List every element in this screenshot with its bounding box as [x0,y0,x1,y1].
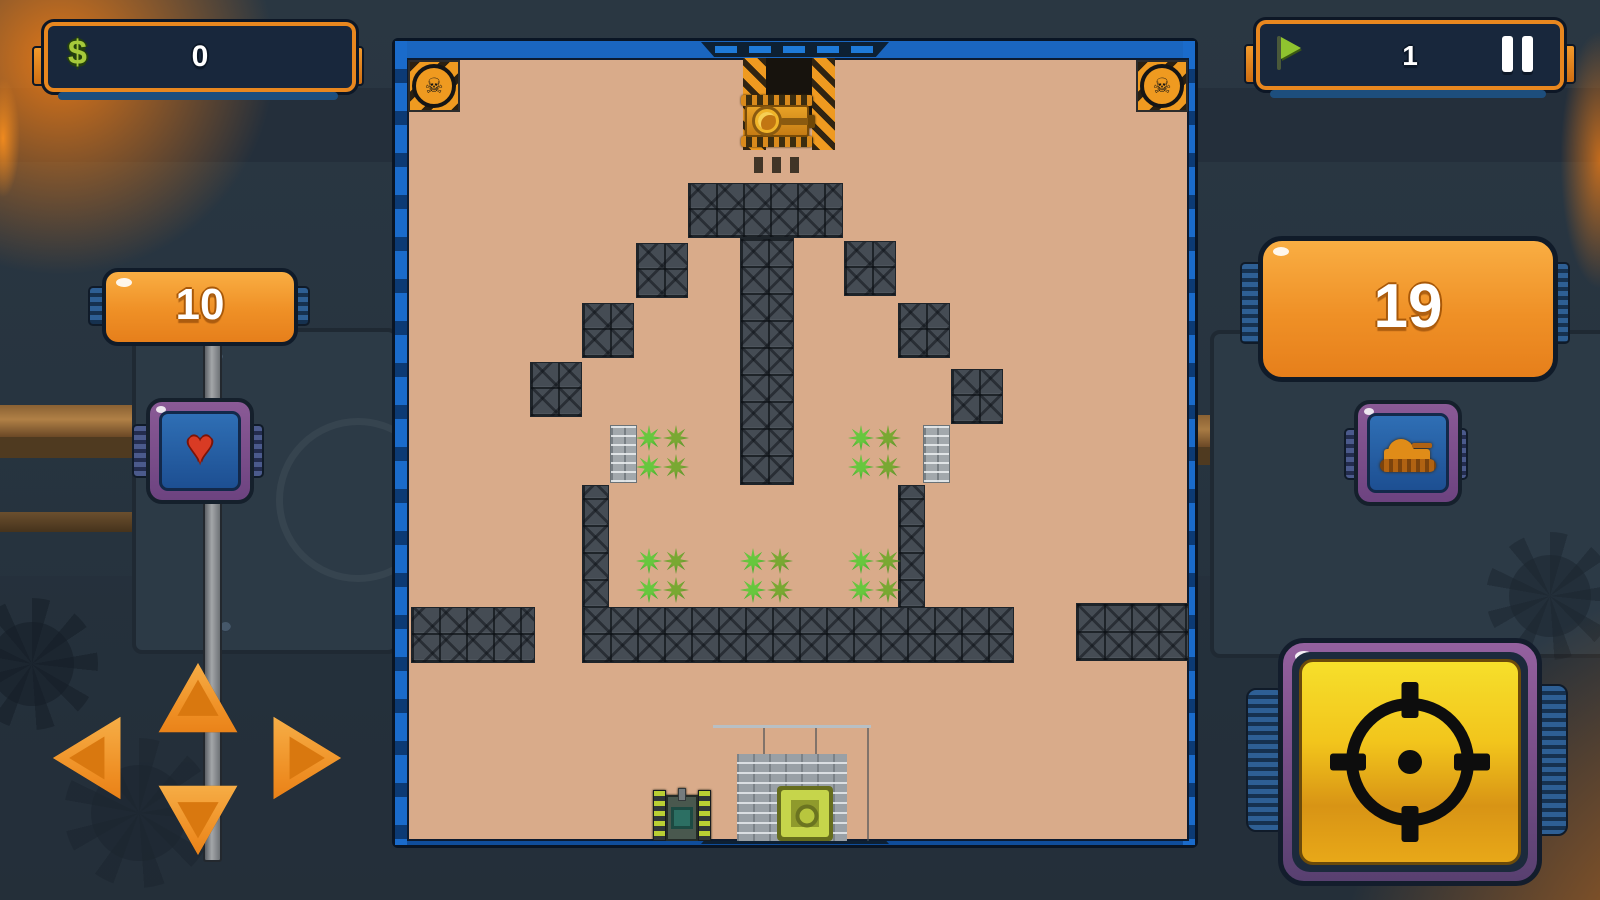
bush-plant [636,548,662,574]
bush-plant [663,425,689,451]
bush-plant [636,577,662,603]
bush-plant [875,548,901,574]
bush-plant [875,577,901,603]
enemy-count-value: 19 [1263,271,1553,342]
lives-value: 10 [106,280,294,330]
steel-wall [688,183,843,238]
player-tank [653,788,711,841]
lives-heart-button: ♥ [146,398,254,504]
track-marks [754,157,799,173]
level-panel-body: 1 [1256,20,1564,90]
bush-plant [663,454,689,480]
bush-plant [636,425,662,451]
board-frame: ☠☠ [392,38,1198,848]
game-screen: $ 0 1 10 ♥ [0,0,1600,900]
bush-plant [663,577,689,603]
frame-deco-top [701,42,889,57]
steel-wall [1076,603,1189,661]
bush-plant [767,548,793,574]
bush-plant [636,454,662,480]
skull-icon: ☠ [1140,64,1184,108]
money-value: 0 [48,40,352,74]
bush-plant [848,454,874,480]
bush-plant [848,425,874,451]
steel-wall [411,607,535,663]
steel-wall [636,243,688,298]
enemy-tank [739,95,815,147]
skull-icon: ☠ [412,64,456,108]
spawn-gate-hazard [812,58,835,150]
bush-plant [740,577,766,603]
brick-wall [923,425,950,483]
bush-plant [848,548,874,574]
heart-icon: ♥ [162,420,238,472]
hazard-corner-tile: ☠ [408,60,460,112]
fire-button[interactable] [1278,638,1542,886]
steel-wall [582,303,634,358]
steel-wall [844,241,896,296]
steel-wall [951,369,1003,424]
panel-underbar [58,92,338,100]
steel-wall [582,607,1014,663]
bush-plant [663,548,689,574]
steel-wall [530,362,582,417]
board-playfield: ☠☠ [407,58,1189,841]
steel-wall [740,238,794,485]
tank-icon [1380,434,1436,472]
steel-wall [898,485,925,609]
money-panel-body: $ 0 [44,22,356,92]
bush-plant [875,425,901,451]
bush-plant [875,454,901,480]
lives-badge: 10 [102,268,298,346]
base-emblem [777,786,833,841]
frame-edge [395,41,407,845]
bush-plant [848,577,874,603]
bush-plant [740,548,766,574]
enemy-tank-button [1354,400,1462,506]
enemy-count-badge: 19 [1258,236,1558,382]
panel-underbar [1270,90,1546,98]
pause-icon [1502,36,1513,72]
steel-wall [898,303,950,358]
steel-wall [582,485,609,609]
bush-plant [767,577,793,603]
pause-button[interactable] [1500,36,1540,72]
crosshair-icon [1330,682,1490,842]
hazard-corner-tile: ☠ [1136,60,1188,112]
brick-wall [610,425,637,483]
base-structure [713,725,871,841]
